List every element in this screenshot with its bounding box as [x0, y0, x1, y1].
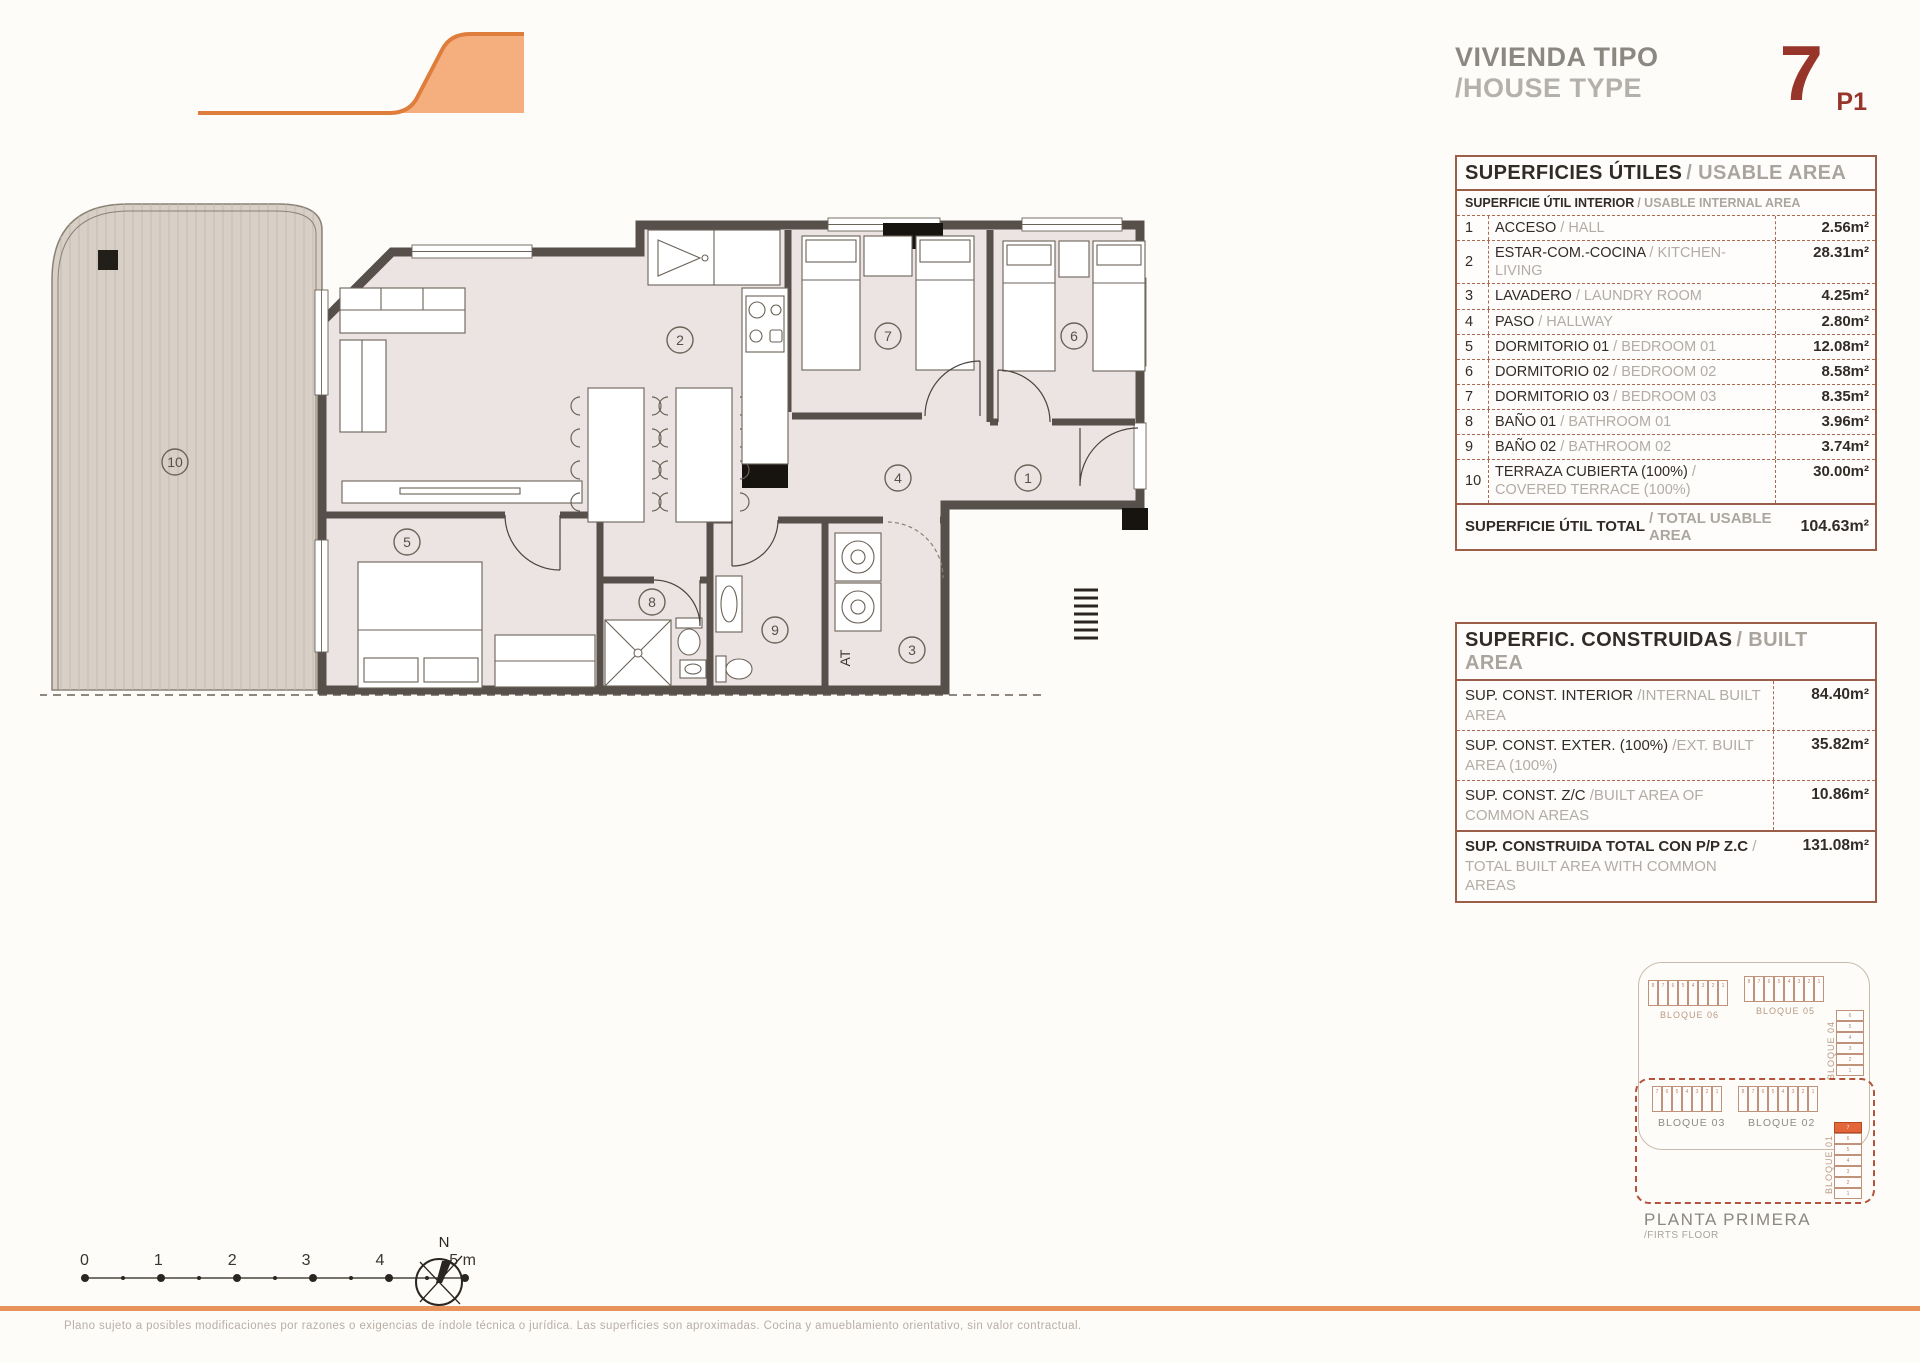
terrace-column [98, 250, 118, 270]
room-label-3: 3 [899, 637, 925, 663]
unit-cell: 7 [1652, 1086, 1662, 1112]
unit-cell: 4 [1778, 1086, 1788, 1112]
footer-accent-line [0, 1306, 1920, 1311]
svg-text:6: 6 [1070, 328, 1078, 344]
unit-cell: 8 [1648, 980, 1658, 1006]
unit-cell: 5 [1774, 976, 1784, 1002]
unit-cell: 3 [1794, 976, 1804, 1002]
unit-cell: 7 [1754, 976, 1764, 1002]
svg-text:3: 3 [908, 642, 916, 658]
unit-cell: 7 [1834, 1122, 1862, 1133]
unit-cell: 5 [1768, 1086, 1778, 1112]
unit-cell: 3 [1836, 1043, 1864, 1054]
footer-disclaimer: Plano sujeto a posibles modificaciones p… [64, 1320, 1082, 1332]
unit-cell: 2 [1798, 1086, 1808, 1112]
svg-text:5: 5 [403, 534, 411, 550]
unit-cell: 2 [1834, 1177, 1862, 1188]
usable-rows: 1 ACCESO / HALL 2.56m² 2 ESTAR-COM.-COCI… [1457, 216, 1875, 503]
unit-cell: 7 [1748, 1086, 1758, 1112]
floor-plan-svg: AT 10 2 7 6 4 1 5 8 9 3 [40, 190, 1180, 710]
bloque-03-label: BLOQUE 03 [1658, 1117, 1725, 1129]
svg-text:9: 9 [771, 622, 779, 638]
unit-cell: 2 [1702, 1086, 1712, 1112]
unit-cell: 5 [1834, 1144, 1862, 1155]
unit-cell: 4 [1836, 1032, 1864, 1043]
unit-cell: 1 [1718, 980, 1728, 1006]
site-caption-spanish: PLANTA PRIMERA [1644, 1210, 1811, 1230]
usable-table-subtitle: SUPERFICIE ÚTIL INTERIOR/ USABLE INTERNA… [1457, 191, 1875, 216]
built-row: SUP. CONST. Z/C /BUILT AREA OF COMMON AR… [1457, 781, 1875, 830]
room-label-4: 4 [885, 465, 911, 491]
bloque-04-units: 654321 [1836, 1010, 1864, 1076]
room-label-10: 10 [162, 449, 188, 475]
unit-cell: 6 [1834, 1133, 1862, 1144]
usable-table-title: SUPERFICIES ÚTILES/ USABLE AREA [1457, 157, 1875, 191]
shower [605, 620, 671, 686]
scale-label: 3 [302, 1252, 311, 1270]
usable-row: 7 DORMITORIO 03 / BEDROOM 03 8.35m² [1457, 385, 1875, 410]
built-total-row: SUP. CONSTRUIDA TOTAL CON P/P Z.C / TOTA… [1457, 830, 1875, 901]
bloque-01-units: 7654321 [1834, 1122, 1862, 1199]
usable-total-row: SUPERFICIE ÚTIL TOTAL / TOTAL USABLE ARE… [1457, 503, 1875, 549]
usable-row: 8 BAÑO 01 / BATHROOM 01 3.96m² [1457, 410, 1875, 435]
unit-cell: 2 [1836, 1054, 1864, 1065]
tv-console [342, 481, 582, 503]
room-label-9: 9 [762, 617, 788, 643]
title-block: VIVIENDA TIPO /HOUSE TYPE 7 P1 [1455, 42, 1875, 126]
bloque-02-units: 87654321 [1738, 1086, 1818, 1112]
room-label-2: 2 [667, 327, 693, 353]
unit-cell: 1 [1808, 1086, 1818, 1112]
room-label-6: 6 [1061, 323, 1087, 349]
brand-logo [180, 5, 640, 130]
svg-text:7: 7 [884, 328, 892, 344]
unit-cell: 4 [1682, 1086, 1692, 1112]
unit-cell: 6 [1764, 976, 1774, 1002]
svg-text:1: 1 [1024, 470, 1032, 486]
usable-row: 10 TERRAZA CUBIERTA (100%) / COVERED TER… [1457, 460, 1875, 502]
exterior-ladder [1074, 590, 1098, 638]
wardrobe [495, 635, 595, 687]
scale-label: 2 [228, 1252, 237, 1270]
unit-cell: 3 [1834, 1166, 1862, 1177]
svg-text:2: 2 [676, 332, 684, 348]
usable-row: 3 LAVADERO / LAUNDRY ROOM 4.25m² [1457, 284, 1875, 309]
usable-row: 1 ACCESO / HALL 2.56m² [1457, 216, 1875, 241]
unit-cell: 1 [1712, 1086, 1722, 1112]
built-rows: SUP. CONST. INTERIOR /INTERNAL BUILT ARE… [1457, 681, 1875, 830]
bloque-03-units: 7654321 [1652, 1086, 1722, 1112]
bloque-04-label: BLOQUE 04 [1826, 1021, 1836, 1080]
north-arrow-icon: N [408, 1232, 472, 1316]
unit-cell: 2 [1804, 976, 1814, 1002]
terrace [52, 204, 322, 690]
room-label-8: 8 [639, 589, 665, 615]
scale-label: 0 [80, 1252, 89, 1270]
unit-cell: 8 [1744, 976, 1754, 1002]
house-type-suffix: P1 [1836, 88, 1867, 117]
usable-area-table: SUPERFICIES ÚTILES/ USABLE AREA SUPERFIC… [1455, 155, 1877, 551]
usable-row: 6 DORMITORIO 02 / BEDROOM 02 8.58m² [1457, 360, 1875, 385]
room-label-1: 1 [1015, 465, 1041, 491]
unit-cell: 3 [1692, 1086, 1702, 1112]
unit-cell: 5 [1678, 980, 1688, 1006]
bloque-02-label: BLOQUE 02 [1748, 1117, 1815, 1129]
unit-cell: 7 [1658, 980, 1668, 1006]
built-area-table: SUPERFIC. CONSTRUIDAS/ BUILT AREA SUP. C… [1455, 622, 1877, 903]
built-row: SUP. CONST. INTERIOR /INTERNAL BUILT ARE… [1457, 681, 1875, 731]
unit-cell: 5 [1672, 1086, 1682, 1112]
unit-cell: 3 [1788, 1086, 1798, 1112]
unit-cell: 1 [1814, 976, 1824, 1002]
bloque-06-label: BLOQUE 06 [1660, 1010, 1719, 1020]
unit-cell: 5 [1836, 1021, 1864, 1032]
logo-band [390, 34, 524, 113]
usable-row: 4 PASO / HALLWAY 2.80m² [1457, 310, 1875, 335]
bloque-06-units: 87654321 [1648, 980, 1728, 1006]
house-type-number: 7 [1780, 28, 1823, 119]
unit-cell: 6 [1662, 1086, 1672, 1112]
unit-cell: 8 [1738, 1086, 1748, 1112]
svg-text:N: N [439, 1234, 450, 1251]
unit-cell: 1 [1834, 1188, 1862, 1199]
usable-row: 2 ESTAR-COM.-COCINA / KITCHEN-LIVING 28.… [1457, 241, 1875, 284]
at-label: AT [837, 649, 853, 666]
scale-label: 4 [375, 1252, 384, 1270]
room-label-5: 5 [394, 529, 420, 555]
usable-row: 5 DORMITORIO 01 / BEDROOM 01 12.08m² [1457, 335, 1875, 360]
svg-text:10: 10 [167, 454, 183, 470]
built-table-title: SUPERFIC. CONSTRUIDAS/ BUILT AREA [1457, 624, 1875, 681]
kitchen-sink-unit [648, 230, 780, 285]
scale-label: 1 [154, 1252, 163, 1270]
svg-text:4: 4 [894, 470, 902, 486]
bloque-05-label: BLOQUE 05 [1756, 1006, 1815, 1016]
usable-row: 9 BAÑO 02 / BATHROOM 02 3.74m² [1457, 435, 1875, 460]
unit-cell: 6 [1668, 980, 1678, 1006]
bloque-05-units: 87654321 [1744, 976, 1824, 1002]
unit-cell: 6 [1836, 1010, 1864, 1021]
unit-cell: 4 [1784, 976, 1794, 1002]
svg-text:8: 8 [648, 594, 656, 610]
hob-icon [746, 296, 784, 352]
room-label-7: 7 [875, 323, 901, 349]
unit-cell: 1 [1836, 1065, 1864, 1076]
built-row: SUP. CONST. EXTER. (100%) /EXT. BUILT AR… [1457, 731, 1875, 781]
site-caption-english: /FIRTS FLOOR [1644, 1230, 1719, 1241]
unit-cell: 2 [1708, 980, 1718, 1006]
unit-cell: 3 [1698, 980, 1708, 1006]
unit-cell: 4 [1688, 980, 1698, 1006]
unit-cell: 6 [1758, 1086, 1768, 1112]
bloque-01-label: BLOQUE 01 [1824, 1135, 1834, 1194]
unit-cell: 4 [1834, 1155, 1862, 1166]
site-plan: 87654321 BLOQUE 06 87654321 BLOQUE 05 65… [1630, 952, 1882, 1260]
plan-sheet: { "header": { "title_es": "VIVIENDA TIPO… [0, 0, 1920, 1362]
